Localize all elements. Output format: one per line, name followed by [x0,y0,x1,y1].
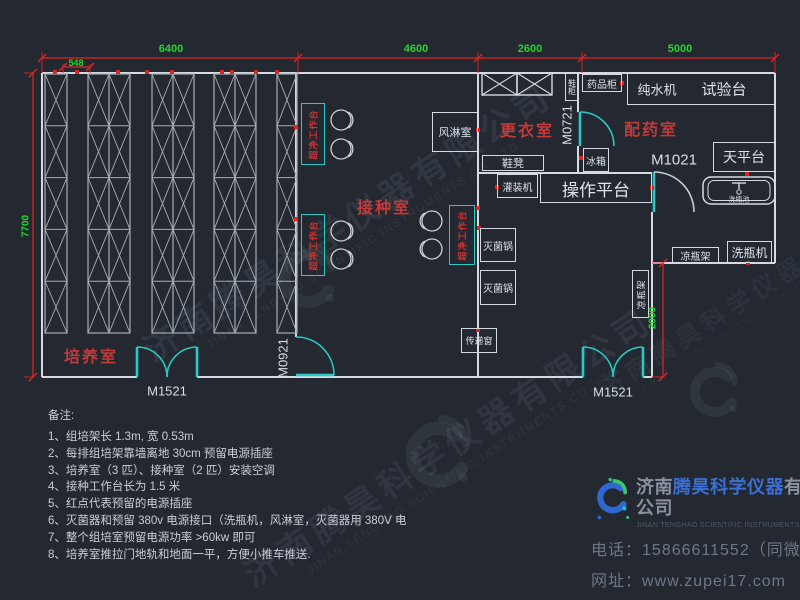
equipment-box-天平台: 天平台 [713,142,775,172]
dimension-label-548: 548 [68,58,83,68]
equipment-box-凉瓶架: 凉瓶架 [632,270,649,318]
note-item: 8、培养室推拉门地轨和地面一平，方便小推车推送. [48,547,508,564]
door-label-M0721: M0721 [560,105,575,145]
note-item: 2、每排组培架靠墙离地 30cm 预留电源插座 [48,446,508,463]
company-name-prefix: 济南 [636,477,673,497]
equipment-label-试验台: 试验台 [701,79,746,100]
svg-text:洗瓶池: 洗瓶池 [729,195,750,204]
equipment-box-灭菌锅: 灭菌锅 [480,228,516,262]
dimension-label-4600: 4600 [404,43,428,55]
notes-title: 备注: [48,407,508,423]
dimension-label-2000: 2000 [648,307,659,329]
equipment-box-冰箱: 冰箱 [583,148,609,172]
equipment-box-鞋柜: 鞋柜 [565,73,578,101]
room-label-培养室: 培养室 [64,343,118,367]
dimension-label-6400: 6400 [159,43,183,55]
notes-block: 备注: 1、组培架长 1.3m, 宽 0.53m2、每排组培架靠墙离地 30cm… [48,407,508,563]
note-item: 7、整个组培室预留电源功率 >60kw 即可 [48,530,508,547]
equipment-box-凉瓶架: 凉瓶架 [672,247,719,263]
equipment-box-洗瓶机: 洗瓶机 [727,241,772,263]
company-name-brand: 腾昊科学仪器 [673,477,784,497]
phone-label: 电话： [591,542,642,559]
clean-bench-box: 超净工作台 [449,205,475,265]
company-info-block: 济南腾昊科学仪器有限公司 JINAN TENGHAO SCIENTIFIC IN… [591,477,796,591]
equipment-box-灭菌锅: 灭菌锅 [480,270,516,305]
note-item: 3、培养室（3 匹）、接种室（2 匹）安装空调 [48,463,508,480]
dimension-label-7700: 7700 [21,215,32,237]
room-label-接种室: 接种室 [357,194,411,218]
company-name-english: JINAN TENGHAO SCIENTIFIC INSTRUMENTS CO.… [636,520,800,529]
door-label-M1021: M1021 [651,152,697,169]
cad-floorplan-canvas: 洗瓶池 风淋室药品柜冰箱天平台鞋凳灌装机操作平台灭菌锅灭菌锅传递窗凉瓶架凉瓶架洗… [0,0,800,600]
note-item: 5、红点代表预留的电源插座 [48,496,508,513]
notes-list: 1、组培架长 1.3m, 宽 0.53m2、每排组培架靠墙离地 30cm 预留电… [48,429,508,563]
company-logo-icon [591,477,631,523]
website-url: www.zupei17.com [642,573,786,590]
website-label: 网址： [591,573,642,590]
room-label-配药室: 配药室 [624,116,678,140]
note-item: 1、组培架长 1.3m, 宽 0.53m [48,429,508,446]
door-label-M0921: M0921 [276,338,291,378]
company-phone-line: 电话：15866611552（同微信） [591,536,796,560]
equipment-label-纯水机: 纯水机 [637,80,676,99]
equipment-box-风淋室: 风淋室 [432,112,478,152]
clean-bench-box: 超净工作台 [301,214,325,276]
door-label-M1521: M1521 [147,384,187,399]
equipment-box-操作平台: 操作平台 [540,173,652,203]
clean-bench-box: 超净工作台 [301,103,325,165]
dimension-label-2600: 2600 [518,43,542,55]
equipment-box-传递窗: 传递窗 [461,328,497,353]
dimension-label-5000: 5000 [668,43,692,55]
equipment-box-鞋凳: 鞋凳 [482,155,544,171]
company-website-line: 网址：www.zupei17.com [591,567,796,591]
door-label-M1521: M1521 [593,385,633,400]
equipment-box-药品柜: 药品柜 [582,74,622,92]
phone-number: 15866611552（同微信） [642,542,800,559]
note-item: 6、灭菌器和预留 380v 电源接口（洗瓶机，风淋室，灭菌器用 380V 电 [48,513,508,530]
company-name: 济南腾昊科学仪器有限公司 [636,477,800,518]
room-label-更衣室: 更衣室 [500,117,554,141]
note-item: 4、接种工作台长为 1.5 米 [48,479,508,496]
equipment-box-灌装机: 灌装机 [497,174,538,198]
